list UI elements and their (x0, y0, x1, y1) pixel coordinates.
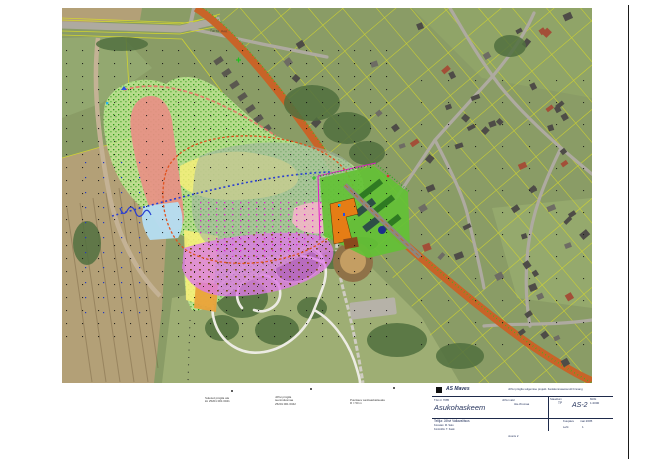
stage-value: TP (558, 401, 562, 405)
title-block-rule-top (432, 396, 613, 397)
work-number: Töö nr 7085 (434, 398, 449, 402)
aerial-map-image: Tartu mnt (62, 8, 592, 383)
drawing-sheet: Tartu mnt Suletud prügila ala kü 25201:0… (0, 0, 650, 459)
map-note-2-line3: 25201:001:0042 (275, 403, 296, 406)
scale-value: 1:2000 (590, 401, 599, 405)
location-line1: Jõhvi vald (502, 398, 514, 402)
annotation-marker-dot (310, 388, 312, 390)
map-note-1-line2: kü 25201:001:0041 (205, 400, 230, 403)
map-note-3: Puurkaev sanitaarkaitseala R = 50 m (350, 399, 385, 406)
title-block-divider (548, 396, 549, 431)
company-name: AS Maves (446, 386, 470, 392)
annotation-marker-dot (231, 390, 233, 392)
date-value: mai 2005 (580, 419, 592, 423)
drawing-title: Asukohaskeem (434, 403, 485, 412)
annotation-marker-dot (393, 387, 395, 389)
sheet-frame-line (628, 5, 629, 459)
road-name-label: Tartu mnt (210, 29, 228, 34)
drawing-number: AS-2 (572, 402, 588, 409)
map-note-2: Jõhvi prügila teenindusmaa 25201:001:004… (275, 396, 296, 406)
sheet-label: Leht (563, 425, 568, 429)
checker-line: Kontrollis: T. Kask (434, 428, 455, 431)
client-line: Tellija: Jõhvi Vallavalitsus (434, 419, 470, 423)
map-note-1: Suletud prügila ala kü 25201:001:0041 (205, 397, 230, 404)
date-label: Kuupäev (563, 419, 574, 423)
map-note-3-line2: R = 50 m (350, 402, 385, 405)
footer-note: Joonis 2 (508, 434, 518, 438)
title-block: AS Maves Jõhvi prügila sulgemise projekt… (432, 383, 613, 432)
location-line2: Ida-Virumaa (514, 402, 529, 406)
sheet-value: 1 (582, 425, 584, 429)
project-title: Jõhvi prügila sulgemise projekt. Keskkon… (508, 387, 583, 391)
company-logo (436, 387, 442, 393)
